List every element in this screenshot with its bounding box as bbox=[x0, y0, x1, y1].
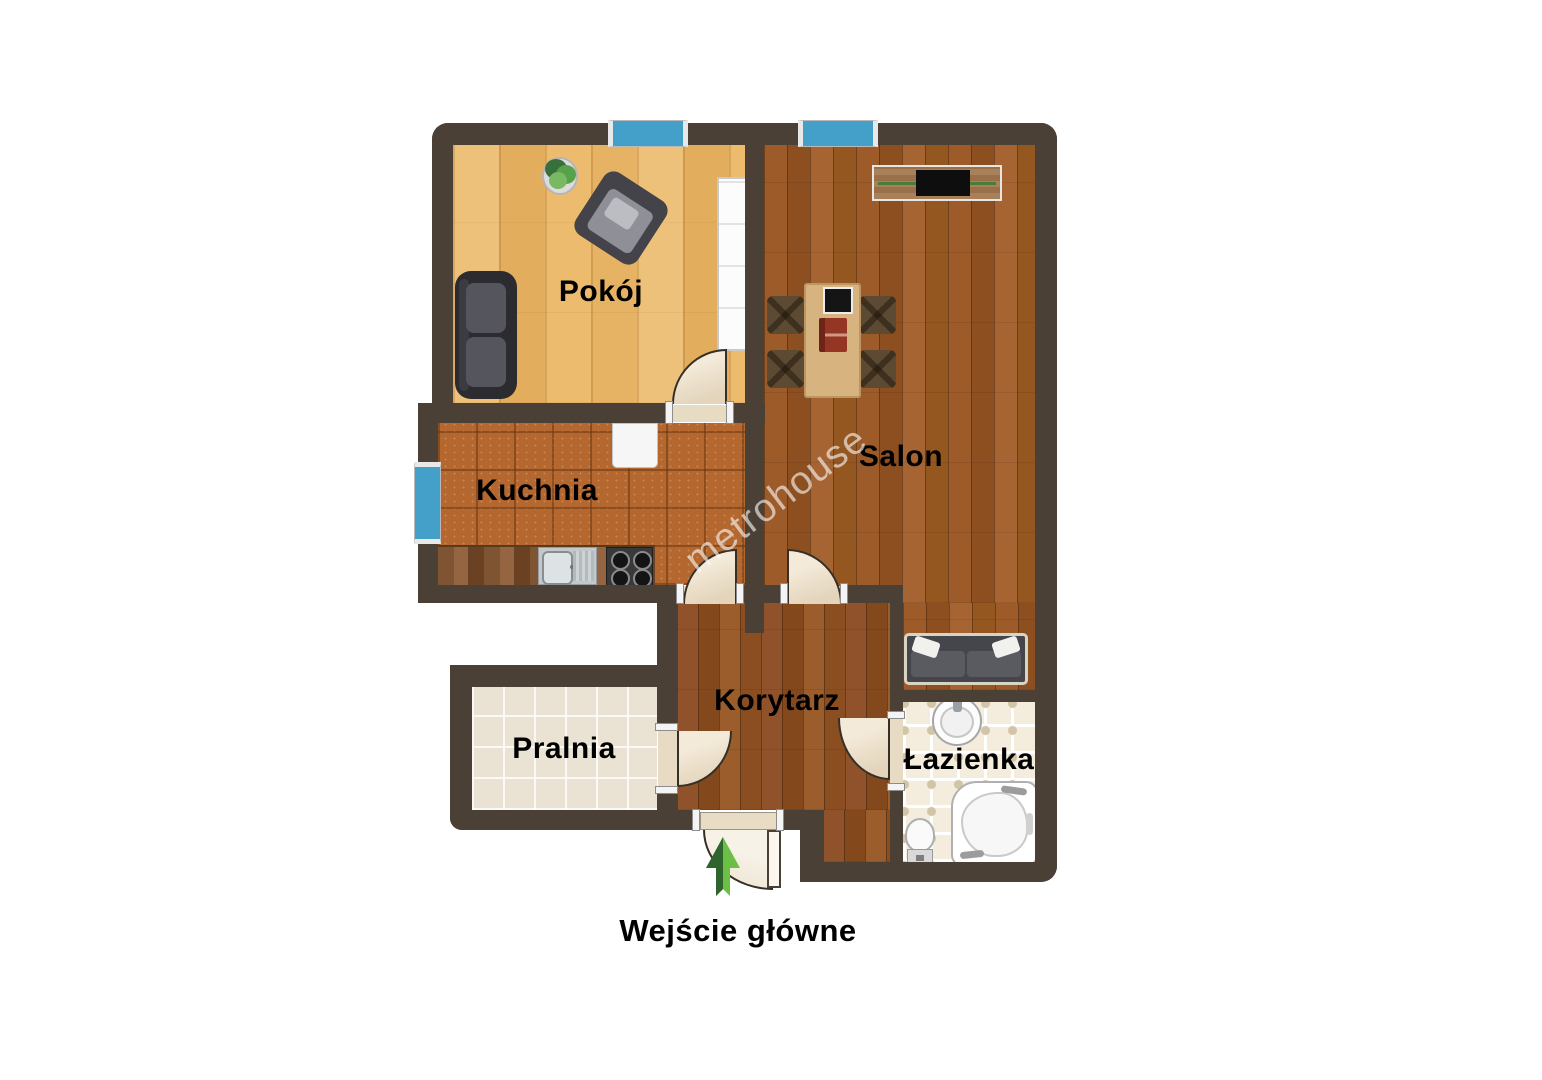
wall-niche-left bbox=[890, 585, 903, 692]
door-sill-pralnia bbox=[658, 730, 677, 787]
wall-corridor-left-upper bbox=[657, 585, 677, 730]
wall-right bbox=[1035, 123, 1057, 882]
door-jamb bbox=[887, 783, 905, 791]
door-jamb bbox=[676, 583, 684, 604]
wall-pralnia-left bbox=[450, 665, 472, 830]
dining-chair bbox=[767, 296, 804, 334]
dining-chair bbox=[859, 350, 896, 388]
door-jamb bbox=[655, 786, 678, 794]
sofa-cushion bbox=[911, 651, 965, 677]
wardrobe bbox=[717, 177, 748, 351]
book bbox=[819, 318, 847, 352]
entrance-door-sill bbox=[700, 812, 777, 830]
door-jamb bbox=[692, 809, 700, 831]
door-jamb bbox=[736, 583, 744, 604]
room-label-pralnia: Pralnia bbox=[512, 732, 616, 766]
entrance-label: Wejście główne bbox=[619, 913, 856, 949]
wall-bathroom-top bbox=[890, 690, 1035, 702]
sofa-cushion bbox=[466, 337, 506, 387]
door-sill-pokoj bbox=[672, 405, 727, 422]
plant-leaf bbox=[549, 172, 567, 189]
dining-chair bbox=[767, 350, 804, 388]
dining-chair bbox=[859, 296, 896, 334]
kitchen-sink bbox=[538, 547, 597, 585]
burner-icon bbox=[633, 551, 652, 570]
room-label-pokoj: Pokój bbox=[559, 275, 643, 309]
entrance-door-leaf bbox=[767, 830, 781, 888]
door-jamb bbox=[780, 583, 788, 604]
sofa bbox=[455, 271, 517, 399]
door-jamb bbox=[776, 809, 784, 831]
window-icon-kuchnia bbox=[414, 462, 441, 544]
wall-bottom-right bbox=[800, 862, 1057, 882]
wall-partition-pokoj-salon bbox=[745, 123, 764, 633]
door-jamb bbox=[726, 401, 734, 424]
room-label-salon: Salon bbox=[859, 440, 943, 474]
picture-frame bbox=[823, 287, 853, 314]
toilet bbox=[905, 818, 936, 868]
bathtub-grip bbox=[1026, 813, 1033, 835]
tv-cabinet bbox=[872, 165, 1002, 201]
plant-icon bbox=[542, 157, 578, 195]
room-korytarz-alcove-floor bbox=[823, 810, 890, 862]
toilet-bowl bbox=[905, 818, 935, 852]
burner-icon bbox=[611, 551, 630, 570]
wall-kitchen-bottom bbox=[418, 585, 683, 603]
door-jamb bbox=[665, 401, 673, 424]
wall-pralnia-top bbox=[450, 665, 677, 687]
floor-plan: Pokój Kuchnia Salon Korytarz Pralnia Łaz… bbox=[0, 0, 1542, 1080]
door-sill-lazienka bbox=[890, 718, 903, 785]
stove bbox=[606, 547, 653, 587]
bathtub-basin bbox=[961, 792, 1028, 857]
corner-bathtub bbox=[951, 781, 1038, 867]
door-jamb bbox=[655, 723, 678, 731]
drainboard bbox=[573, 551, 594, 581]
washbasin bbox=[932, 696, 982, 746]
room-label-kuchnia: Kuchnia bbox=[476, 474, 598, 508]
wall-pokoj-bottom-left bbox=[418, 403, 672, 423]
room-label-korytarz: Korytarz bbox=[714, 684, 840, 718]
tv-icon bbox=[916, 170, 970, 196]
fridge bbox=[612, 423, 658, 468]
window-icon-pokoj bbox=[608, 120, 688, 147]
window-icon-salon bbox=[798, 120, 878, 147]
room-label-lazienka: Łazienka bbox=[904, 743, 1035, 777]
toilet-button bbox=[916, 855, 924, 861]
sink-basin bbox=[542, 551, 573, 585]
bathtub-grip bbox=[960, 850, 985, 859]
door-jamb bbox=[887, 711, 905, 719]
entrance-arrow-icon bbox=[705, 836, 741, 898]
sofa-cushion bbox=[466, 283, 506, 333]
wall-pralnia-bottom bbox=[450, 810, 700, 830]
wall-left-pokoj bbox=[432, 123, 453, 423]
door-jamb bbox=[840, 583, 848, 604]
salon-sofa bbox=[904, 633, 1028, 685]
